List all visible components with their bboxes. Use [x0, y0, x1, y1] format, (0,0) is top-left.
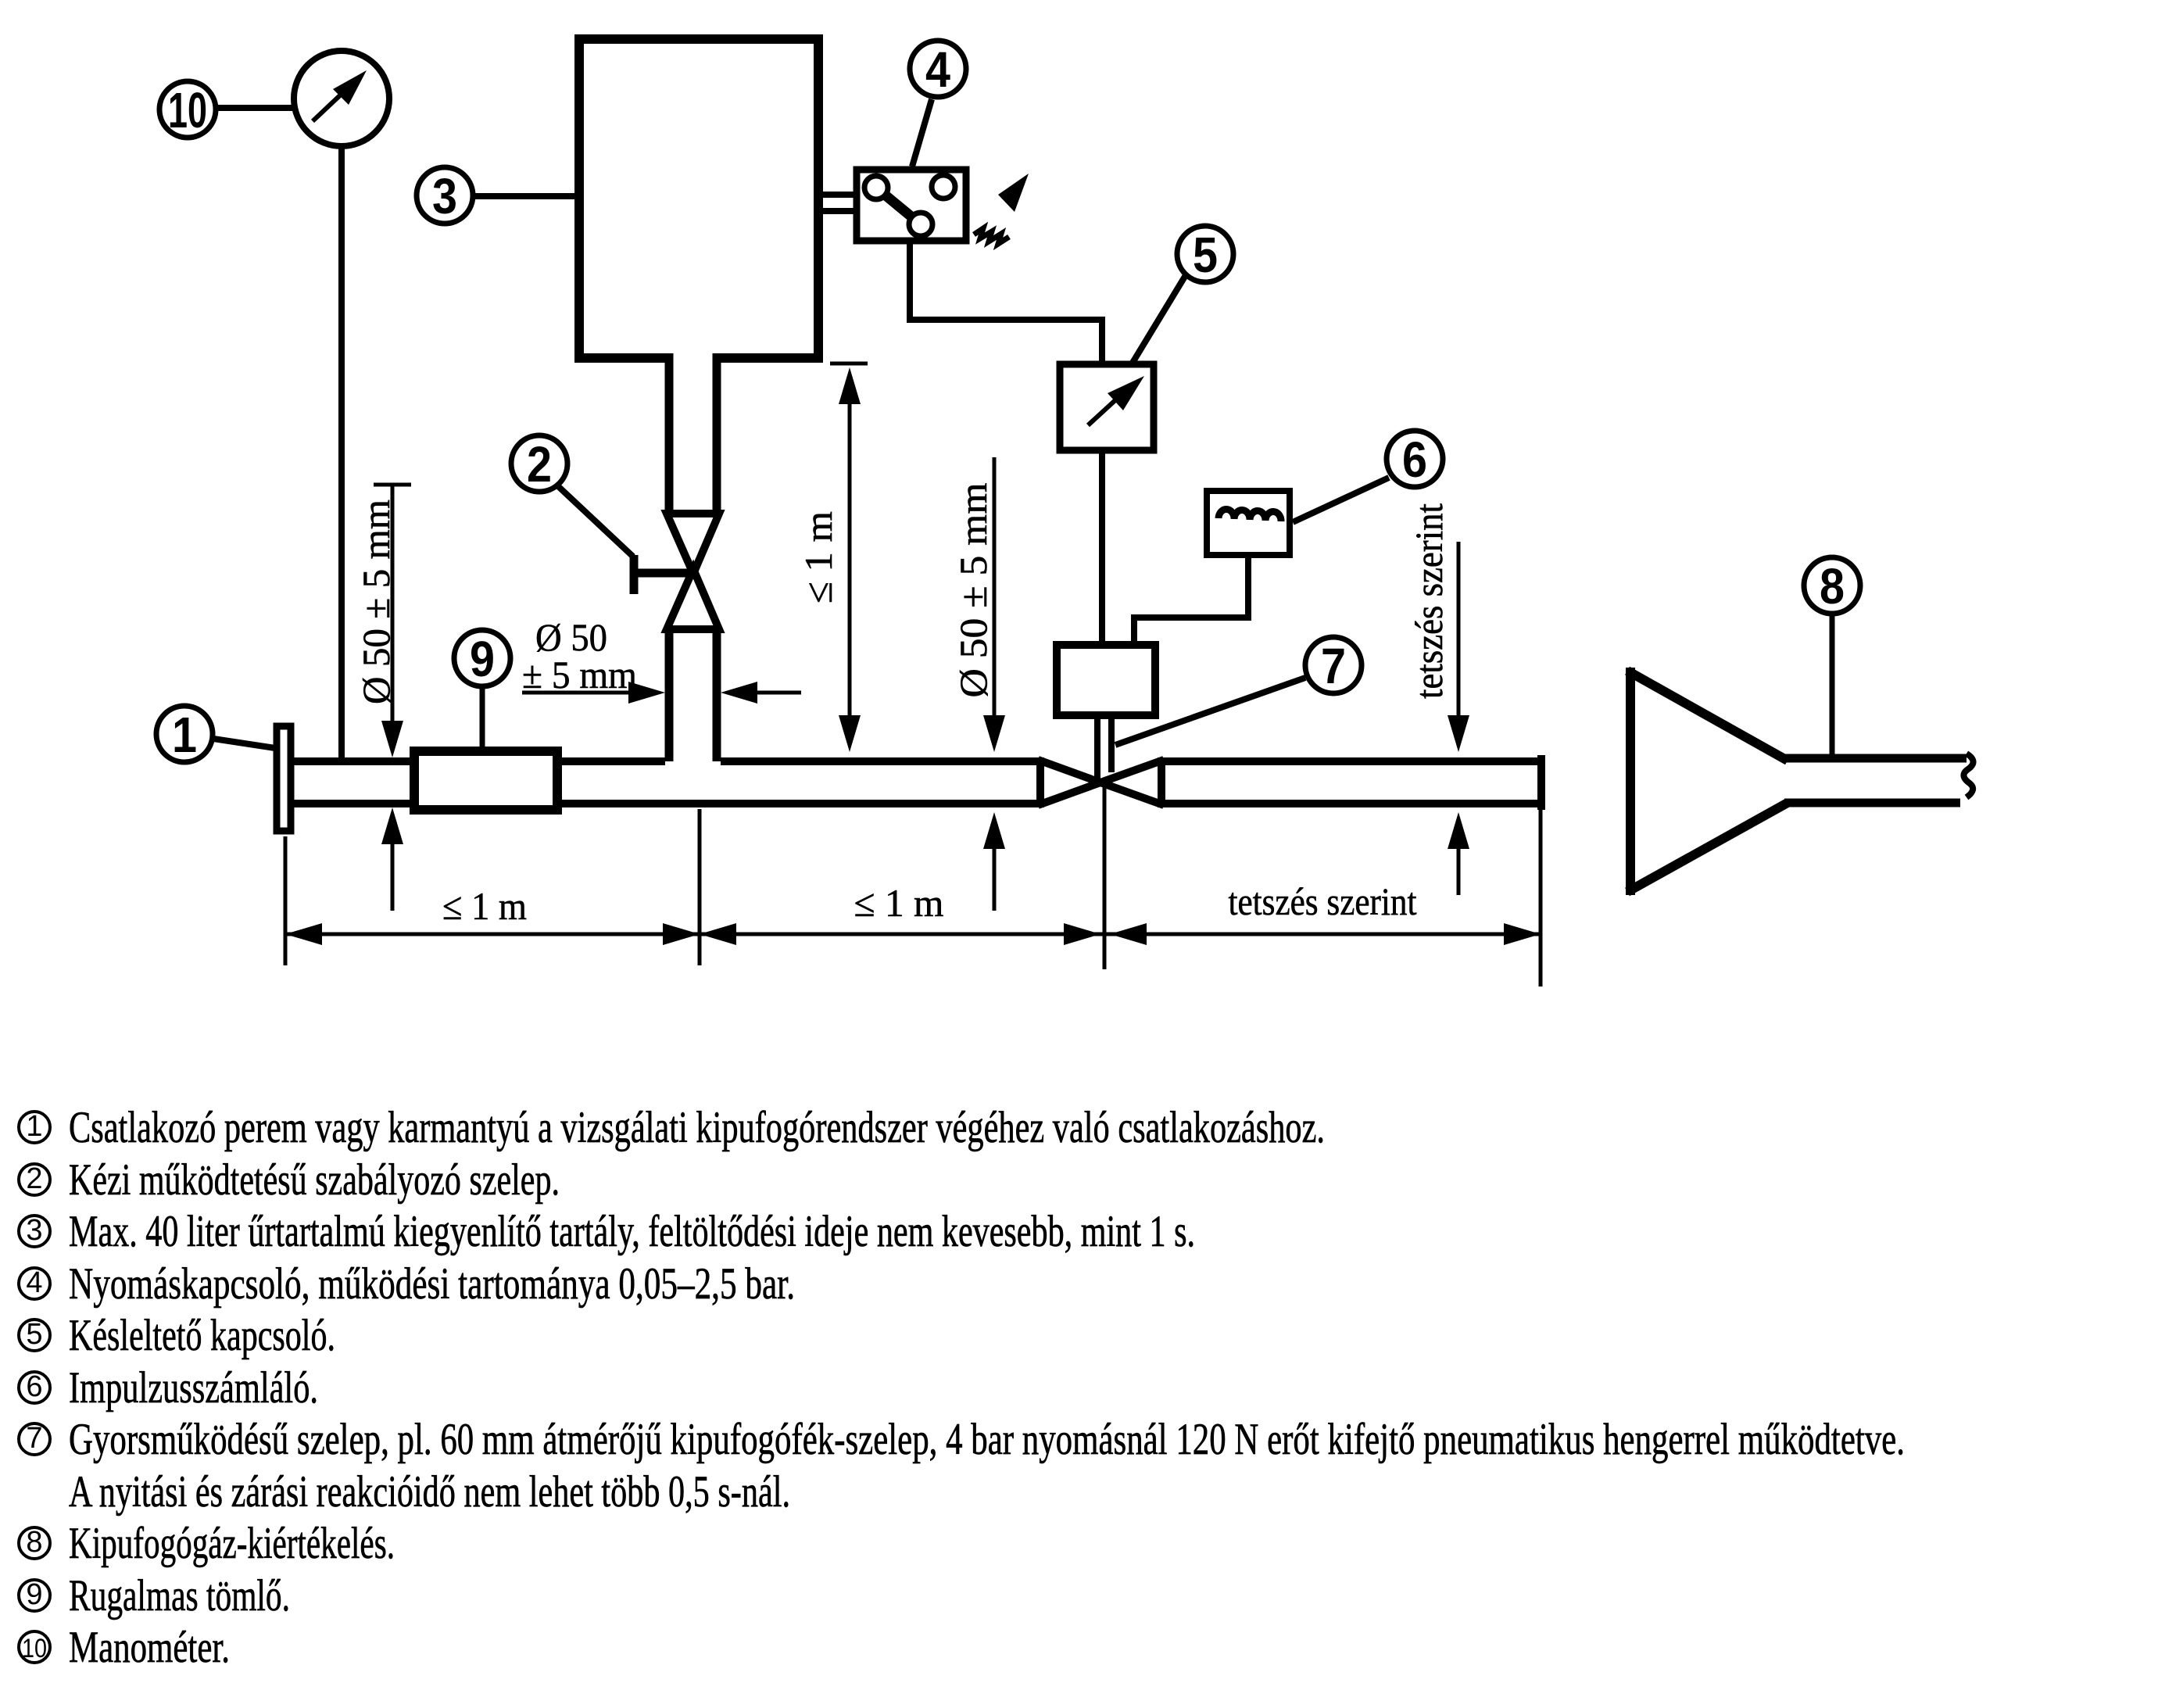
svg-text:± 5 mm: ± 5 mm [522, 653, 637, 696]
svg-text:Impulzusszámláló.: Impulzusszámláló. [69, 1363, 318, 1413]
svg-text:6: 6 [1402, 431, 1427, 488]
svg-text:8: 8 [1820, 558, 1845, 614]
svg-text:4: 4 [26, 1266, 42, 1299]
svg-text:tetszés szerint: tetszés szerint [1229, 879, 1417, 923]
svg-text:4: 4 [925, 41, 950, 98]
svg-text:Max. 40 liter űrtartalmú kiegy: Max. 40 liter űrtartalmú kiegyenlítő tar… [69, 1207, 1195, 1256]
svg-text:3: 3 [432, 168, 457, 224]
svg-text:Ø 50 ± 5 mm: Ø 50 ± 5 mm [951, 482, 995, 697]
svg-text:≤ 1 m: ≤ 1 m [442, 884, 527, 928]
svg-text:Csatlakozó perem vagy karmanty: Csatlakozó perem vagy karmantyú a vizsgá… [69, 1103, 1325, 1152]
svg-text:3: 3 [26, 1214, 42, 1247]
svg-text:1: 1 [26, 1110, 42, 1143]
svg-text:≤ 1 m: ≤ 1 m [854, 881, 944, 925]
svg-text:Manométer.: Manométer. [69, 1623, 230, 1672]
svg-text:7: 7 [26, 1422, 42, 1455]
svg-text:tetszés szerint: tetszés szerint [1407, 503, 1451, 699]
svg-text:5: 5 [1193, 227, 1218, 283]
svg-text:9: 9 [470, 631, 495, 687]
svg-text:5: 5 [26, 1318, 42, 1351]
svg-text:10: 10 [168, 82, 207, 138]
svg-text:Késleltető kapcsoló.: Késleltető kapcsoló. [69, 1311, 335, 1360]
svg-text:6: 6 [26, 1370, 42, 1403]
svg-text:8: 8 [26, 1526, 42, 1559]
svg-text:Rugalmas tömlő.: Rugalmas tömlő. [69, 1571, 290, 1620]
svg-text:9: 9 [26, 1578, 42, 1611]
svg-text:2: 2 [26, 1162, 42, 1195]
svg-text:A nyitási és zárási reakcióidő: A nyitási és zárási reakcióidő nem lehet… [69, 1467, 790, 1516]
svg-text:Kipufogógáz-kiértékelés.: Kipufogógáz-kiértékelés. [69, 1519, 395, 1568]
svg-text:7: 7 [1321, 638, 1346, 694]
svg-text:Gyorsműködésű szelep, pl. 60 m: Gyorsműködésű szelep, pl. 60 mm átmérőjű… [69, 1415, 1905, 1464]
svg-text:Nyomáskapcsoló, működési tarto: Nyomáskapcsoló, működési tartománya 0,05… [69, 1259, 795, 1309]
svg-text:1: 1 [172, 707, 197, 763]
svg-text:Kézi működtetésű szabályozó sz: Kézi működtetésű szabályozó szelep. [69, 1155, 560, 1205]
svg-text:10: 10 [22, 1634, 47, 1663]
svg-text:2: 2 [527, 436, 552, 492]
svg-text:≤ 1 m: ≤ 1 m [796, 511, 840, 603]
svg-text:Ø 50 ± 5 mm: Ø 50 ± 5 mm [354, 500, 398, 704]
